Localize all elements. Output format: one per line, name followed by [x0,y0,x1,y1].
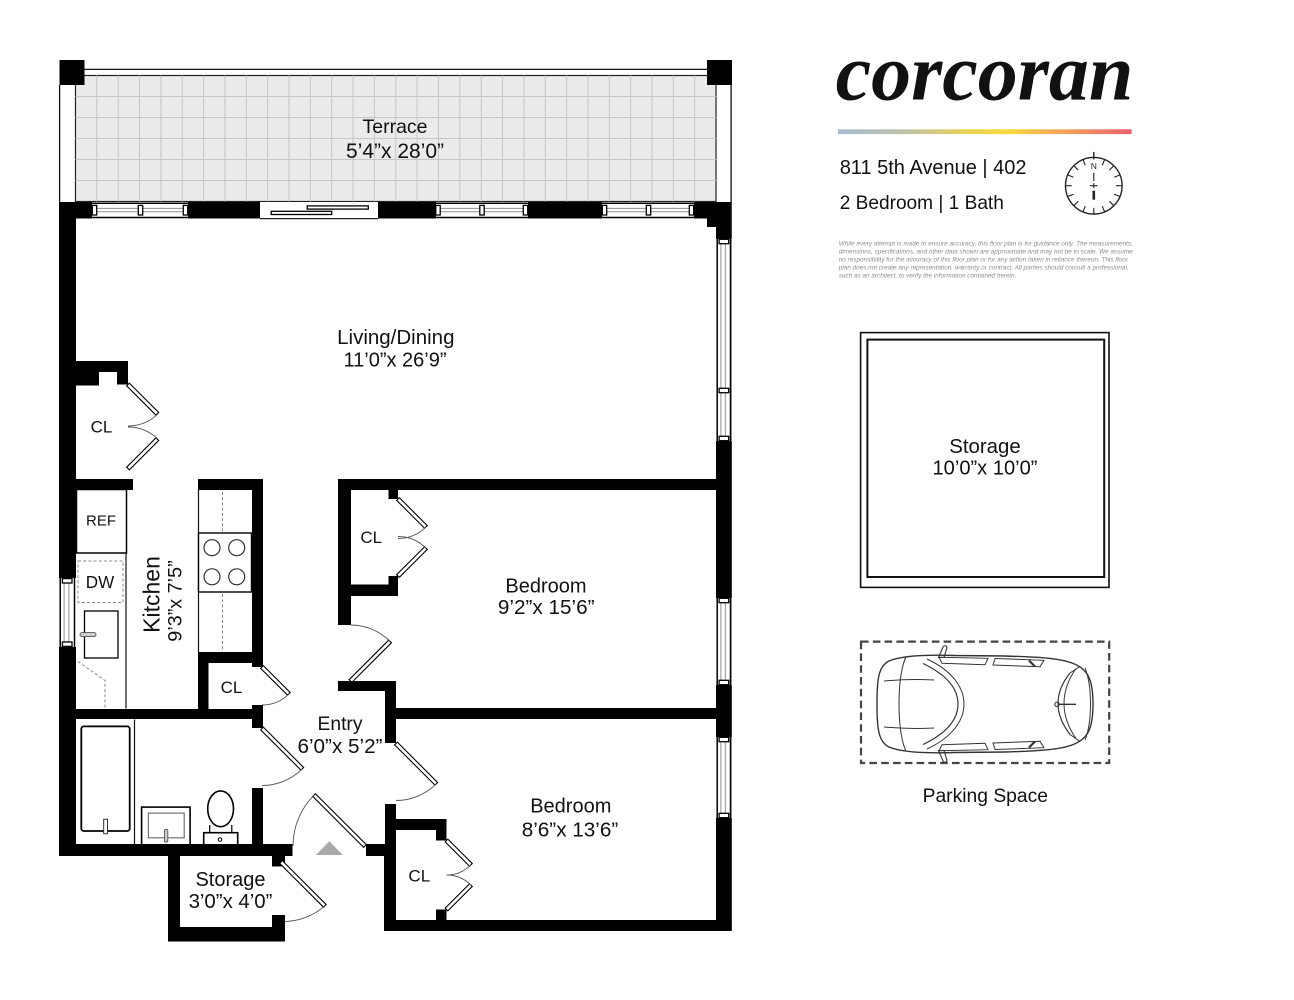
svg-text:corcoran: corcoran [836,30,1134,118]
svg-text:9’3”x 7’5”: 9’3”x 7’5” [165,560,187,641]
svg-text:Storage: Storage [949,436,1020,458]
svg-text:8’6”x 13’6”: 8’6”x 13’6” [522,819,619,842]
svg-text:Parking Space: Parking Space [923,786,1048,807]
svg-text:Living/Dining: Living/Dining [337,326,454,349]
svg-text:While every attempt is made to: While every attempt is made to ensure ac… [839,241,1133,248]
svg-text:no responsibility for the accu: no responsibility for the accuracy of th… [839,257,1129,264]
svg-text:REF: REF [86,513,116,530]
svg-text:DW: DW [86,573,115,592]
svg-text:CL: CL [91,418,113,437]
svg-text:Storage: Storage [195,869,265,891]
svg-text:6’0”x 5’2”: 6’0”x 5’2” [297,735,382,758]
svg-text:such as an architect, to verif: such as an architect, to verify the info… [839,273,1017,280]
svg-text:Entry: Entry [317,714,362,735]
svg-text:10’0”x 10’0”: 10’0”x 10’0” [933,458,1038,480]
svg-text:dimensions, specifications, an: dimensions, specifications, and other da… [839,249,1133,256]
svg-text:CL: CL [408,867,430,886]
svg-text:Bedroom: Bedroom [530,796,611,818]
svg-text:11’0”x 26’9”: 11’0”x 26’9” [343,350,446,372]
svg-text:CL: CL [360,528,382,547]
svg-text:Kitchen: Kitchen [139,556,165,633]
svg-text:CL: CL [221,678,243,697]
svg-text:9’2”x 15’6”: 9’2”x 15’6” [498,596,595,619]
svg-text:plan does not create any repre: plan does not create any representation,… [838,265,1129,272]
svg-text:5’4”x 28’0”: 5’4”x 28’0” [346,140,444,163]
svg-text:N: N [1091,161,1097,171]
svg-text:2 Bedroom | 1 Bath: 2 Bedroom | 1 Bath [840,193,1004,214]
svg-text:3’0”x 4’0”: 3’0”x 4’0” [189,891,273,913]
svg-text:Terrace: Terrace [362,116,427,138]
svg-text:Bedroom: Bedroom [505,576,586,598]
svg-text:811 5th Avenue | 402: 811 5th Avenue | 402 [840,157,1027,179]
